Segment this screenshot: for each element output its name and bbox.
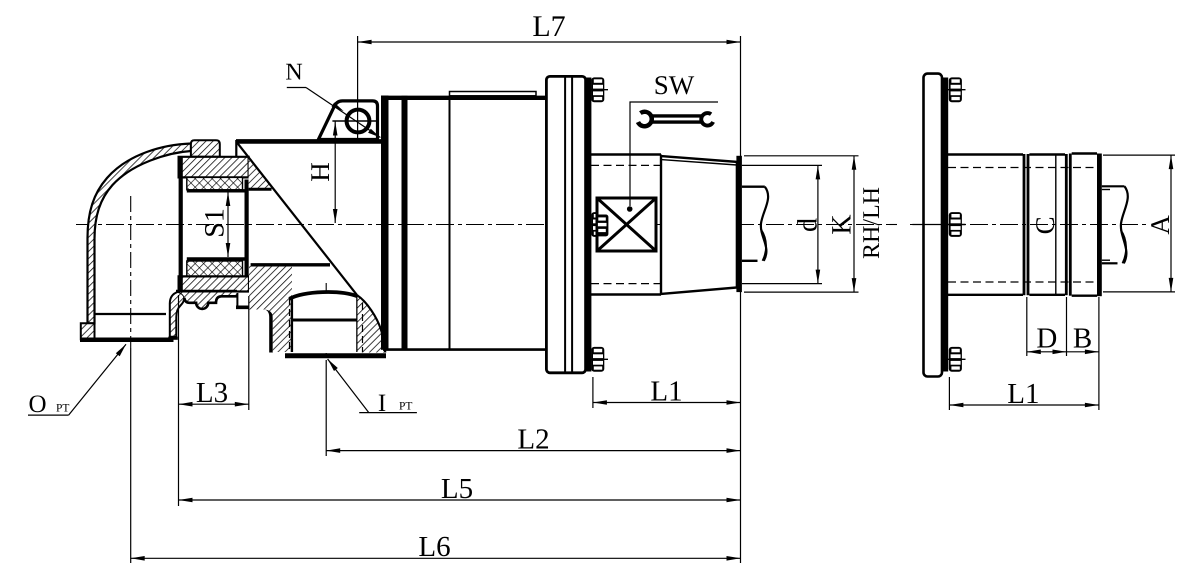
svg-text:K: K (827, 214, 858, 234)
svg-text:PT: PT (399, 401, 412, 413)
svg-text:C: C (1030, 216, 1060, 234)
svg-text:PT: PT (56, 403, 69, 415)
svg-text:O: O (28, 391, 46, 418)
svg-text:d: d (793, 218, 824, 232)
svg-text:SW: SW (654, 70, 695, 100)
svg-text:L5: L5 (441, 473, 473, 505)
svg-text:S1: S1 (200, 208, 231, 238)
svg-text:L3: L3 (196, 377, 228, 409)
svg-text:D: D (1036, 323, 1057, 355)
svg-text:L1: L1 (650, 376, 682, 408)
svg-text:A: A (1145, 215, 1175, 235)
svg-text:RH/LH: RH/LH (859, 187, 885, 259)
svg-text:L7: L7 (532, 10, 565, 43)
svg-text:L6: L6 (418, 531, 450, 563)
svg-text:N: N (285, 60, 302, 86)
svg-text:H: H (305, 162, 335, 182)
svg-text:L2: L2 (517, 424, 549, 456)
svg-text:B: B (1073, 323, 1092, 355)
svg-text:L1: L1 (1007, 378, 1039, 410)
